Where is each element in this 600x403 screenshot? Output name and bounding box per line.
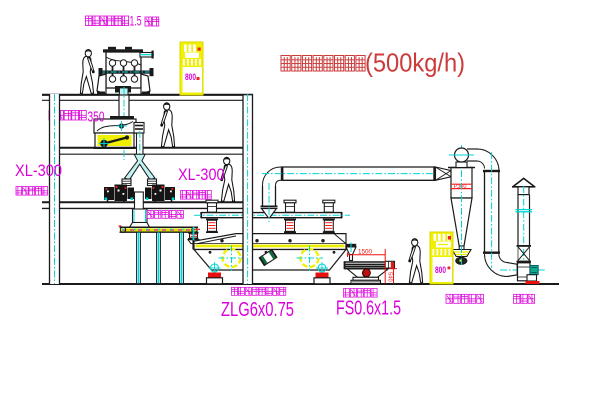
svg-text:ZLG6x0.75: ZLG6x0.75	[221, 298, 294, 321]
svg-text:FS0.6x1.5: FS0.6x1.5	[336, 298, 401, 320]
svg-text:350: 350	[88, 110, 105, 126]
svg-text:(500kg/h): (500kg/h)	[365, 48, 465, 78]
svg-text:800: 800	[435, 265, 446, 276]
svg-text:P300: P300	[454, 184, 467, 190]
svg-text:1.5: 1.5	[130, 13, 142, 29]
svg-text:XL-300: XL-300	[15, 162, 62, 180]
svg-text:XL-300: XL-300	[178, 166, 225, 184]
svg-text:540: 540	[387, 272, 393, 282]
svg-text:1500: 1500	[358, 249, 373, 256]
svg-text:800: 800	[185, 72, 196, 83]
